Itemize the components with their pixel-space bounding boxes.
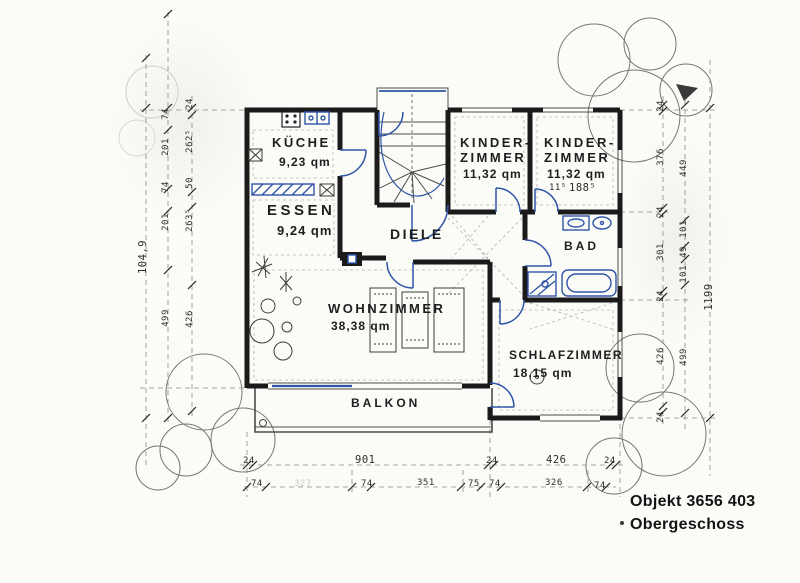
dim-right-mid-2: 49	[679, 246, 689, 258]
room-area-wohnzimmer: 38,38 qm	[331, 320, 390, 334]
floorplan-page: KÜCHE 9,23 qm ESSEN 9,24 qm KINDER- ZIMM…	[0, 0, 800, 583]
dim-left-mid-3: 201	[161, 213, 171, 231]
room-label-schlafzimmer: SCHLAFZIMMER	[509, 349, 623, 363]
dim-left-mid-4: 499	[161, 309, 171, 327]
room-area-kueche: 9,23 qm	[279, 156, 331, 170]
bullet-mark	[620, 521, 624, 525]
dimension-lines-group	[140, 12, 716, 497]
trees-group	[119, 18, 712, 494]
dim-bottom-inner-7: 74	[594, 481, 606, 491]
dim-bottom-inner-2: 74	[361, 479, 373, 489]
room-label-kueche: KÜCHE	[272, 136, 331, 151]
dim-left-mid-0: 74	[161, 108, 171, 120]
dim-bottom-inner-0: 74	[251, 479, 263, 489]
dim-bottom-outer-1: 901	[355, 454, 375, 466]
dim-right-inner-2: 24	[656, 206, 666, 218]
dim-right-mid-4: 499	[679, 348, 689, 366]
room-area-essen: 9,24 qm	[277, 224, 332, 239]
dim-left-mid-2: 74	[161, 181, 171, 193]
dim-left-total: 104,9	[137, 240, 149, 274]
room-label-kinderzimmer-2: KINDER- ZIMMER	[544, 136, 616, 166]
dim-right-mid-3: 101	[679, 265, 689, 283]
room-label-kinderzimmer-1: KINDER- ZIMMER	[460, 136, 532, 166]
dim-bottom-inner-4: 75	[468, 479, 480, 489]
room-area-kinderzimmer-1: 11,32 qm	[463, 168, 522, 182]
caption: Objekt 3656 403 Obergeschoss	[630, 490, 755, 536]
room-area-schlafzimmer: 18,15 qm	[513, 367, 572, 381]
dim-interior-1: 188⁵	[569, 182, 596, 194]
dim-right-inner-0: 24	[656, 100, 666, 112]
dim-left-inner-4: 426	[185, 310, 195, 328]
dim-bottom-outer-4: 24	[604, 456, 616, 466]
caption-object: Objekt 3656 403	[630, 490, 755, 513]
dim-left-inner-3: 263⁵	[185, 208, 195, 232]
dim-bottom-inner-1: 327	[294, 479, 312, 489]
room-label-diele: DIELE	[390, 226, 444, 242]
dim-left-mid-1: 201	[161, 138, 171, 156]
dim-left-inner-1: 262⁵	[185, 129, 195, 153]
dim-interior-0: 11⁵	[549, 183, 567, 193]
dim-bottom-outer-2: 24	[486, 456, 498, 466]
dim-right-mid-1: 101	[679, 220, 689, 238]
dim-right-inner-4: 24	[656, 290, 666, 302]
north-mark	[676, 84, 698, 101]
dim-bottom-inner-3: 351	[417, 478, 435, 488]
room-label-bad: BAD	[564, 240, 599, 254]
caption-floor: Obergeschoss	[630, 513, 755, 536]
dim-right-inner-6: 24	[656, 411, 666, 423]
dim-right-total: 1199	[703, 283, 715, 310]
dimension-ticks-group	[142, 10, 714, 491]
dim-right-inner-1: 376	[656, 148, 666, 166]
dim-right-inner-3: 301	[656, 243, 666, 261]
dim-right-inner-5: 426	[656, 347, 666, 365]
dim-left-inner-0: 24	[185, 98, 195, 110]
dim-bottom-outer-3: 426	[546, 454, 566, 466]
dim-bottom-inner-5: 74	[489, 479, 501, 489]
room-label-wohnzimmer: WOHNZIMMER	[328, 302, 445, 317]
dim-right-mid-0: 449	[679, 159, 689, 177]
dim-left-inner-2: 50	[185, 177, 195, 189]
dim-bottom-inner-6: 326	[545, 478, 563, 488]
room-label-balkon: BALKON	[351, 397, 420, 411]
stair-group	[379, 94, 446, 203]
room-label-essen: ESSEN	[267, 202, 335, 219]
room-area-kinderzimmer-2: 11,32 qm	[547, 168, 606, 182]
dim-bottom-outer-0: 24	[243, 456, 255, 466]
